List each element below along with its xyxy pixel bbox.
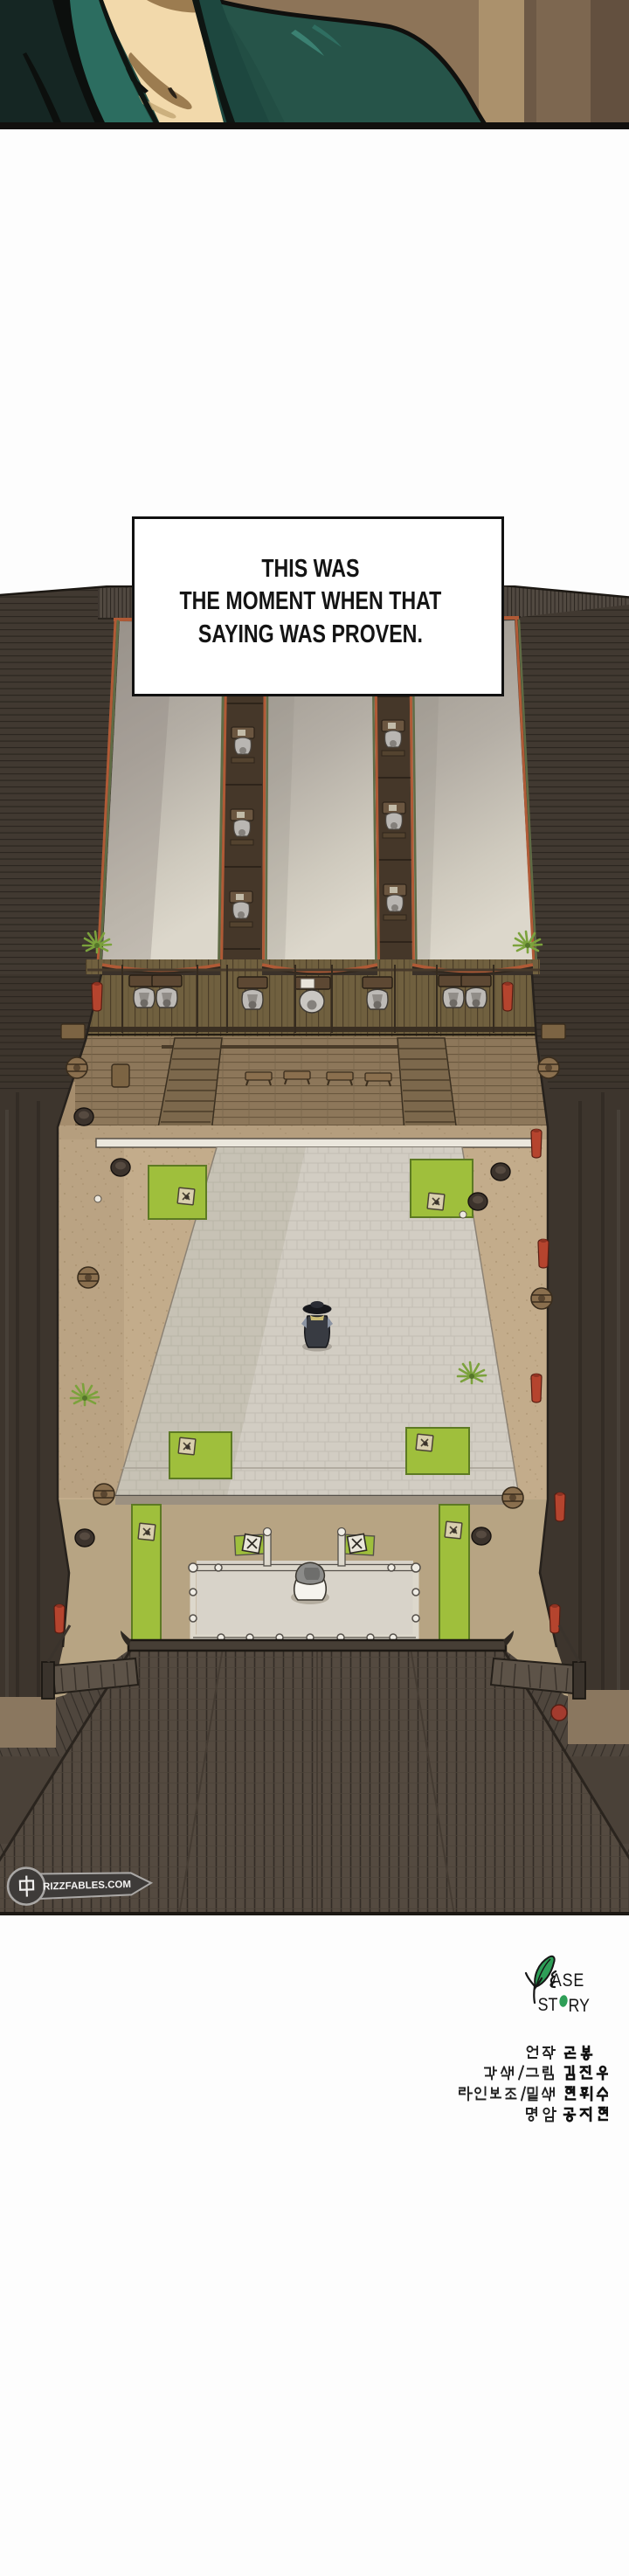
svg-text:ST: ST — [538, 1995, 558, 2016]
svg-text:RY: RY — [568, 1996, 589, 2017]
svg-text:ASE: ASE — [551, 1970, 584, 1991]
